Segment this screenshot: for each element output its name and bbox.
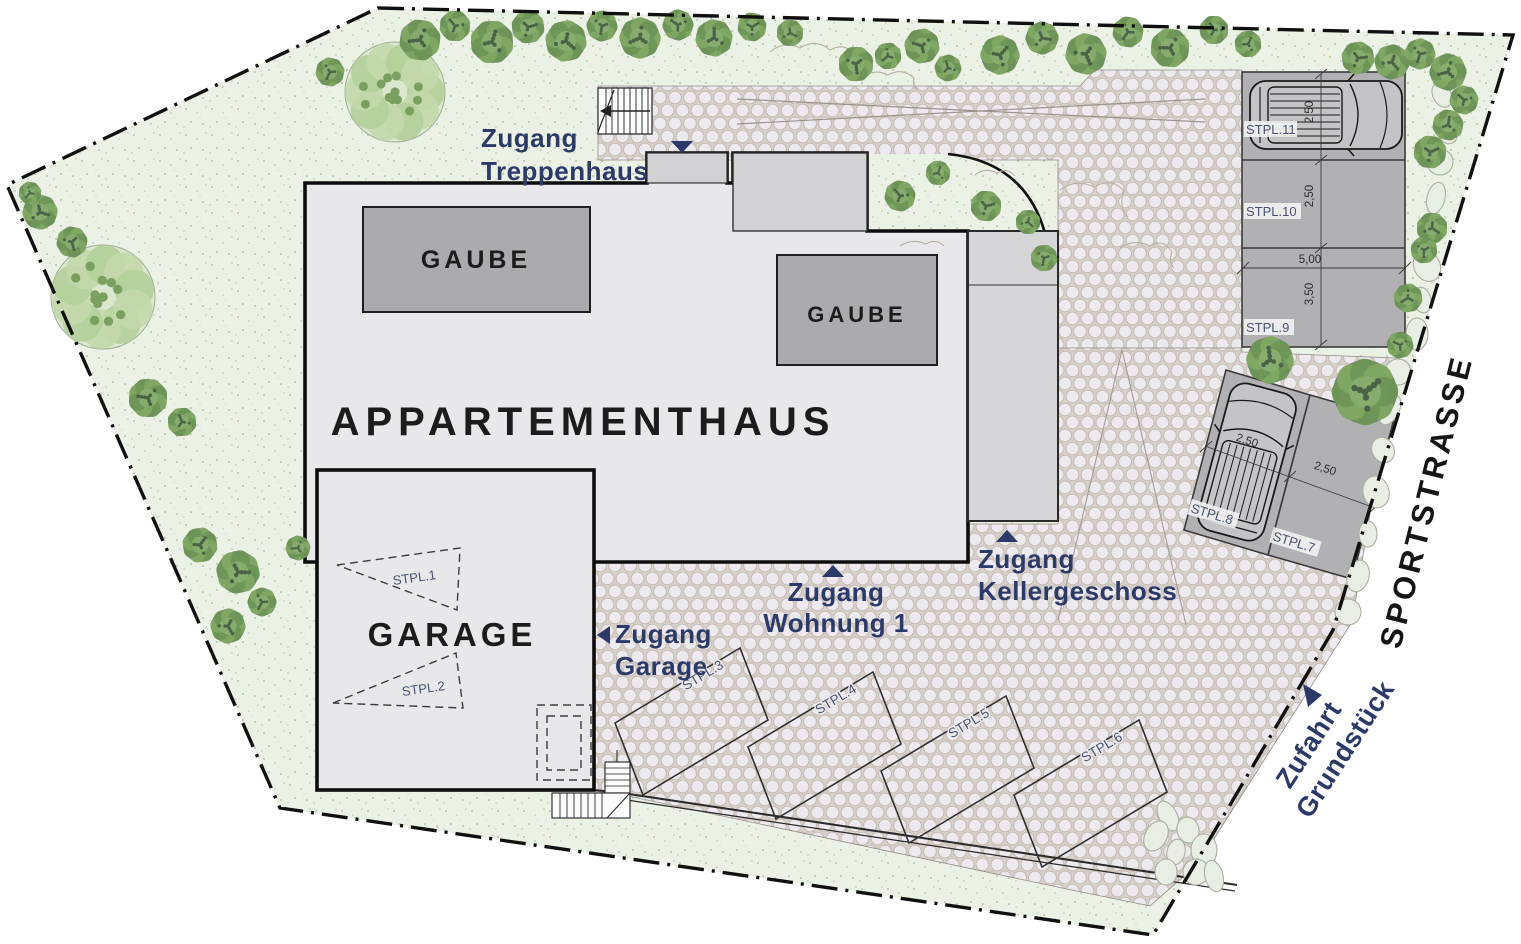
- building-title: APPARTEMENTHAUS: [331, 400, 836, 444]
- svg-text:Treppenhaus: Treppenhaus: [481, 156, 648, 186]
- car-icon: [1250, 74, 1402, 156]
- stall-11-label: STPL.11: [1244, 121, 1297, 137]
- roof-annex-small: [647, 153, 727, 183]
- stairs-north: [598, 88, 652, 134]
- cellar-annex: [968, 231, 1058, 521]
- site-plan: STPL.3 STPL.4 STPL.5 STPL.6 STPL.11 STPL…: [0, 0, 1521, 944]
- roof-annex-large: [733, 153, 867, 231]
- svg-text:GAUBE: GAUBE: [421, 246, 531, 274]
- svg-text:Zugang: Zugang: [978, 544, 1075, 574]
- svg-text:Garage: Garage: [615, 651, 708, 681]
- svg-text:Zugang: Zugang: [615, 619, 712, 649]
- svg-text:Zugang: Zugang: [481, 123, 578, 153]
- parking-row-east: STPL.11 STPL.10 STPL.9: [1242, 72, 1405, 347]
- dim-250-b: 2,50: [1304, 185, 1316, 207]
- svg-text:Zugang: Zugang: [788, 577, 885, 607]
- svg-text:GARAGE: GARAGE: [368, 616, 537, 653]
- dim-500: 5,00: [1299, 254, 1321, 266]
- svg-text:GAUBE: GAUBE: [807, 302, 906, 327]
- stall-9-label: STPL.9: [1244, 319, 1294, 335]
- dim-250-a: 2,50: [1304, 101, 1316, 123]
- svg-text:STPL.9: STPL.9: [1246, 320, 1289, 335]
- svg-text:STPL.10: STPL.10: [1246, 204, 1297, 219]
- svg-text:Wohnung 1: Wohnung 1: [763, 608, 909, 638]
- svg-text:STPL.11: STPL.11: [1246, 122, 1296, 137]
- gaube-1: GAUBE: [363, 207, 590, 312]
- dim-350: 3,50: [1304, 283, 1316, 305]
- gaube-2: GAUBE: [777, 255, 937, 365]
- stall-10-label: STPL.10: [1244, 203, 1301, 219]
- garage-building: GARAGE STPL.1 STPL.2: [317, 470, 594, 790]
- svg-text:Kellergeschoss: Kellergeschoss: [978, 576, 1177, 606]
